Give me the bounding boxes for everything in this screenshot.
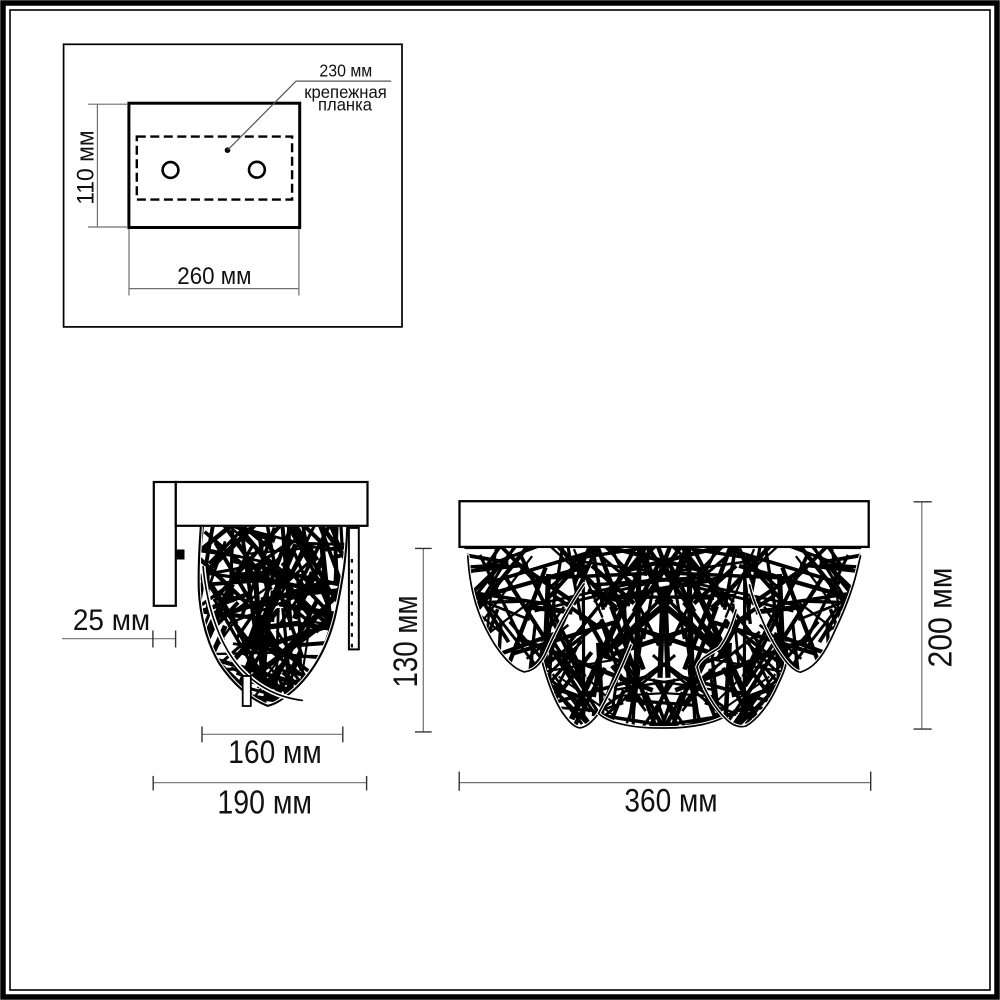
svg-text:200 мм: 200 мм (922, 568, 959, 668)
svg-text:190 мм: 190 мм (217, 784, 312, 821)
svg-text:230 мм: 230 мм (319, 61, 372, 81)
svg-text:160 мм: 160 мм (228, 734, 322, 770)
svg-text:260 мм: 260 мм (177, 263, 251, 290)
svg-text:планка: планка (318, 95, 372, 115)
svg-text:25 мм: 25 мм (73, 604, 150, 637)
svg-text:130 мм: 130 мм (387, 596, 425, 688)
svg-text:110 мм: 110 мм (72, 130, 99, 204)
svg-text:360 мм: 360 мм (624, 782, 717, 818)
